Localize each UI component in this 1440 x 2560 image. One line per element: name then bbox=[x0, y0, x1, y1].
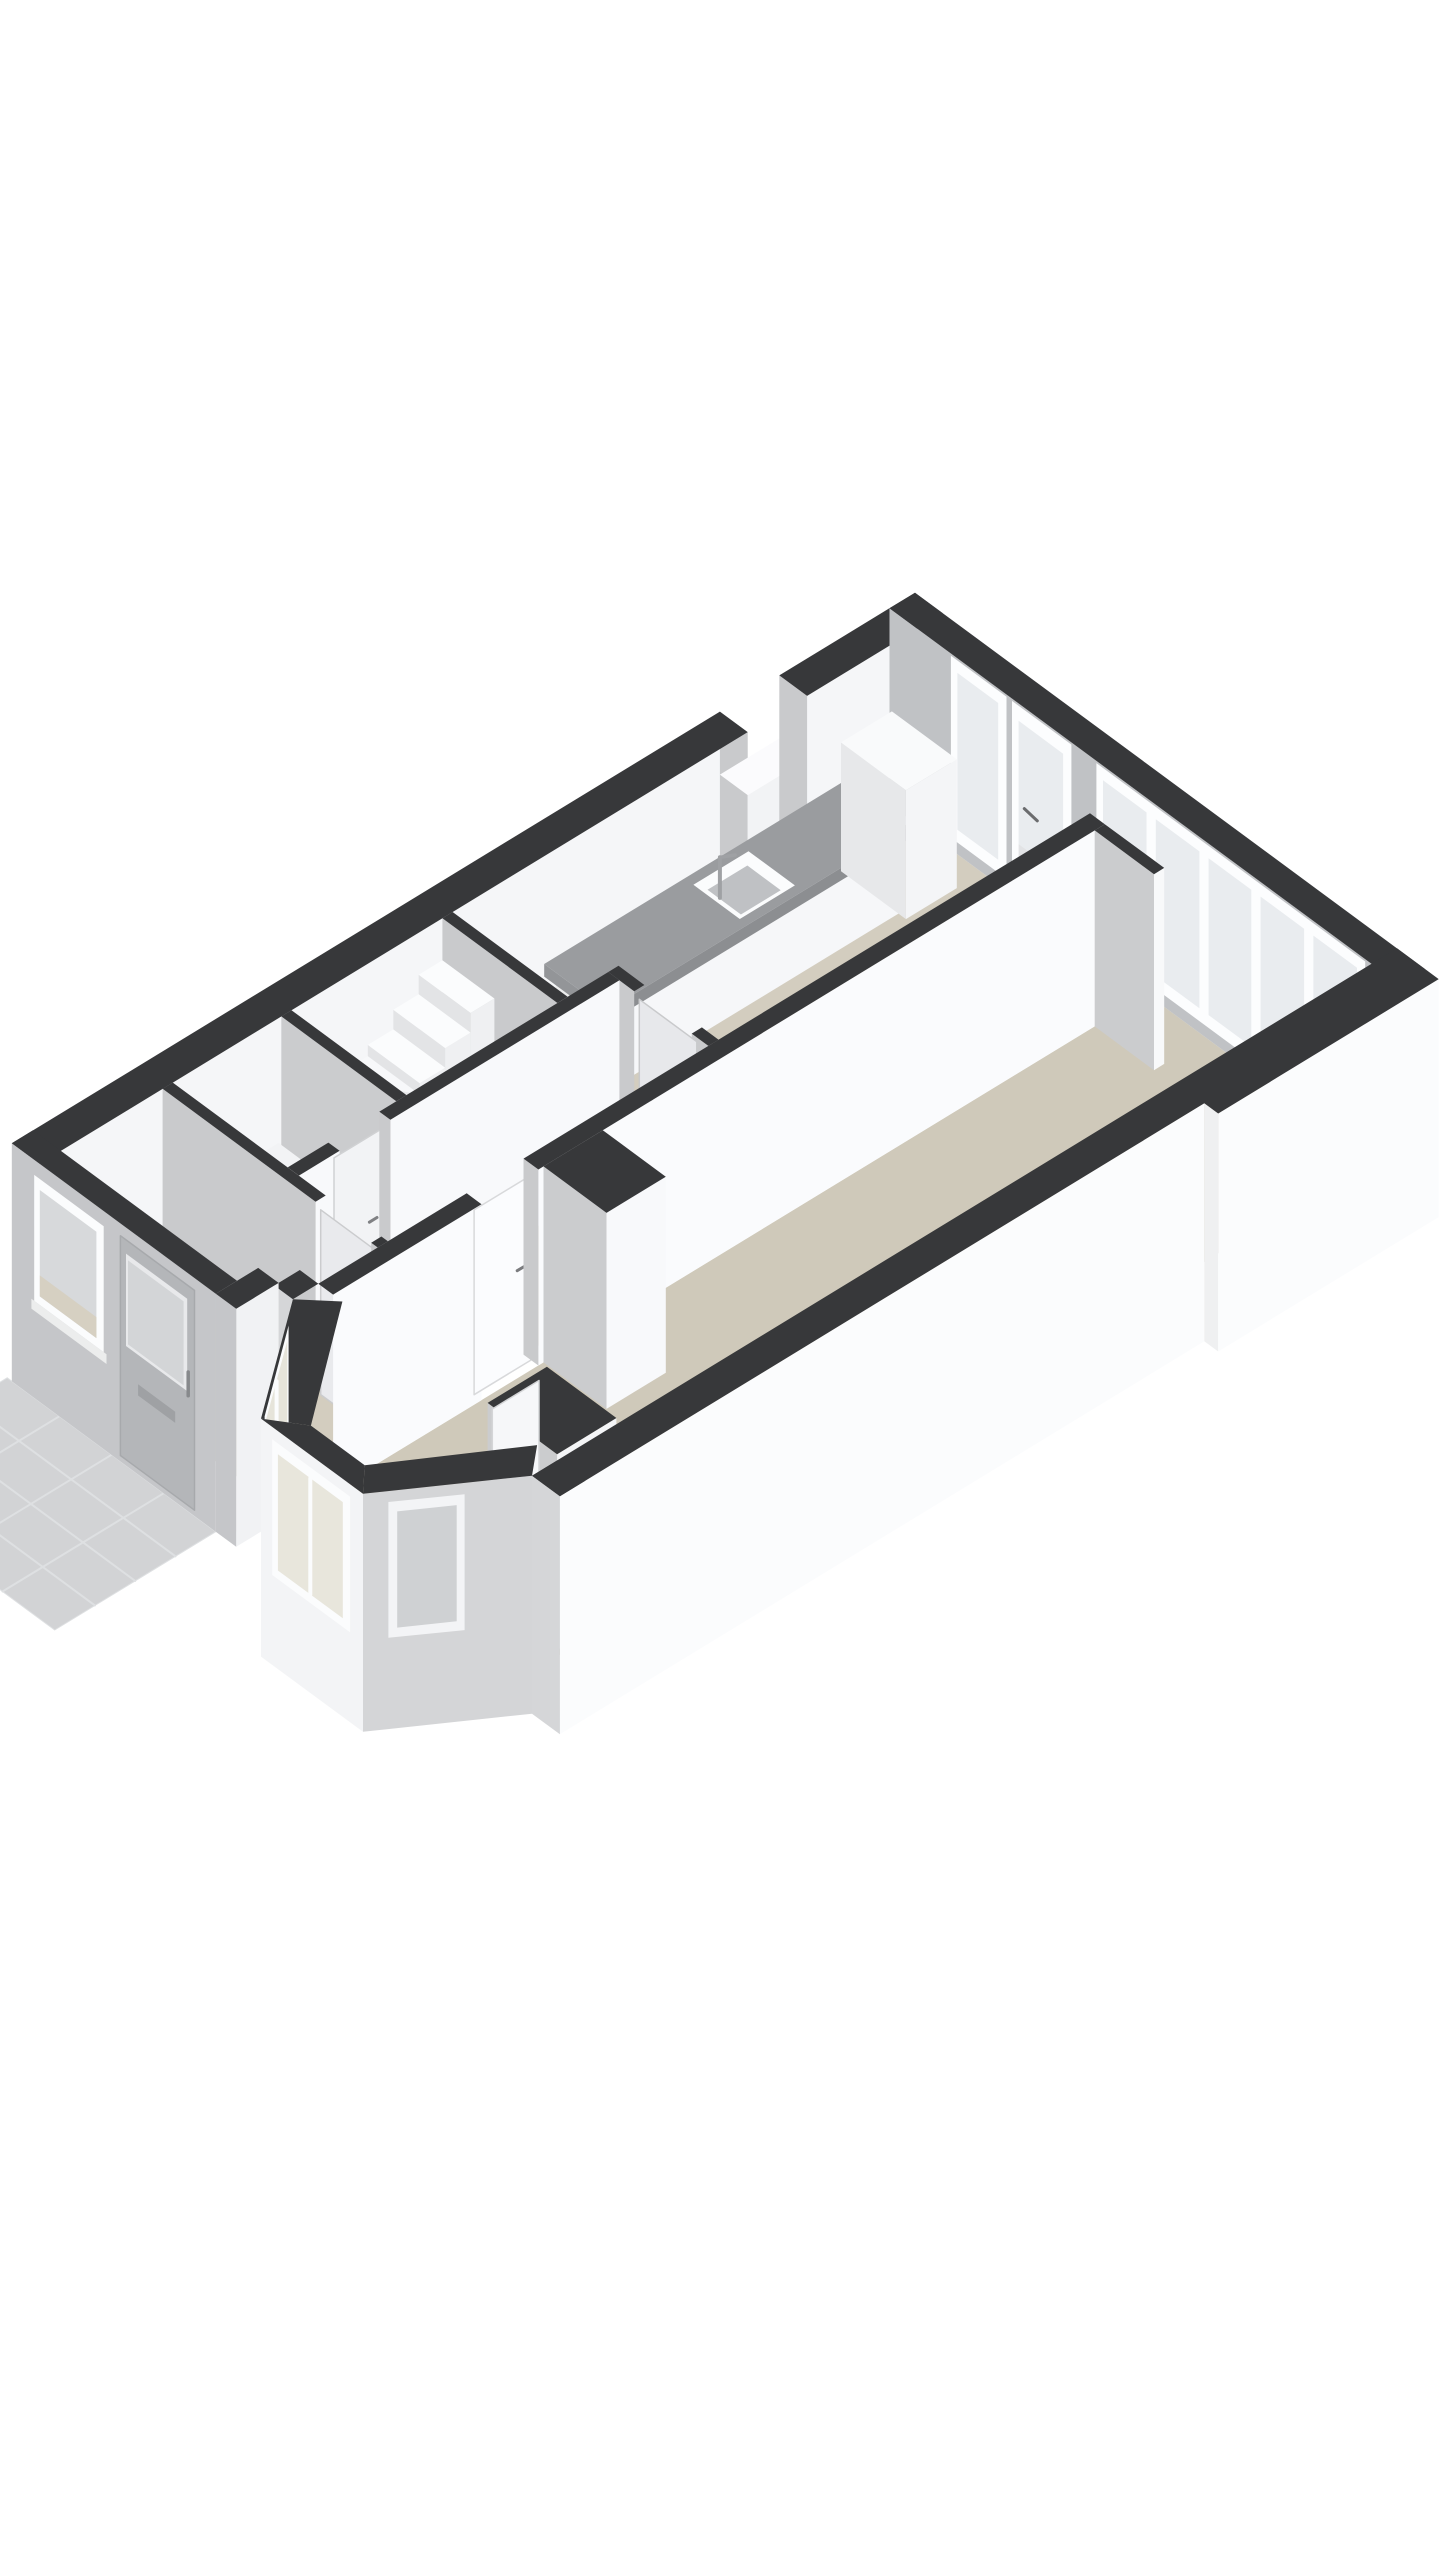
hall-living-door-leaf bbox=[474, 1175, 531, 1394]
meter-closet bbox=[544, 1130, 666, 1409]
page bbox=[0, 0, 1440, 2560]
living-wall-stub bbox=[1095, 824, 1165, 1070]
rear-band-pane-3 bbox=[1209, 858, 1252, 1046]
rear-window-glass bbox=[957, 673, 998, 860]
kitchen-faucet-spout bbox=[720, 855, 735, 857]
bay-window-right-glass bbox=[397, 1505, 457, 1628]
floorplan-3d-canvas bbox=[0, 0, 1440, 2560]
